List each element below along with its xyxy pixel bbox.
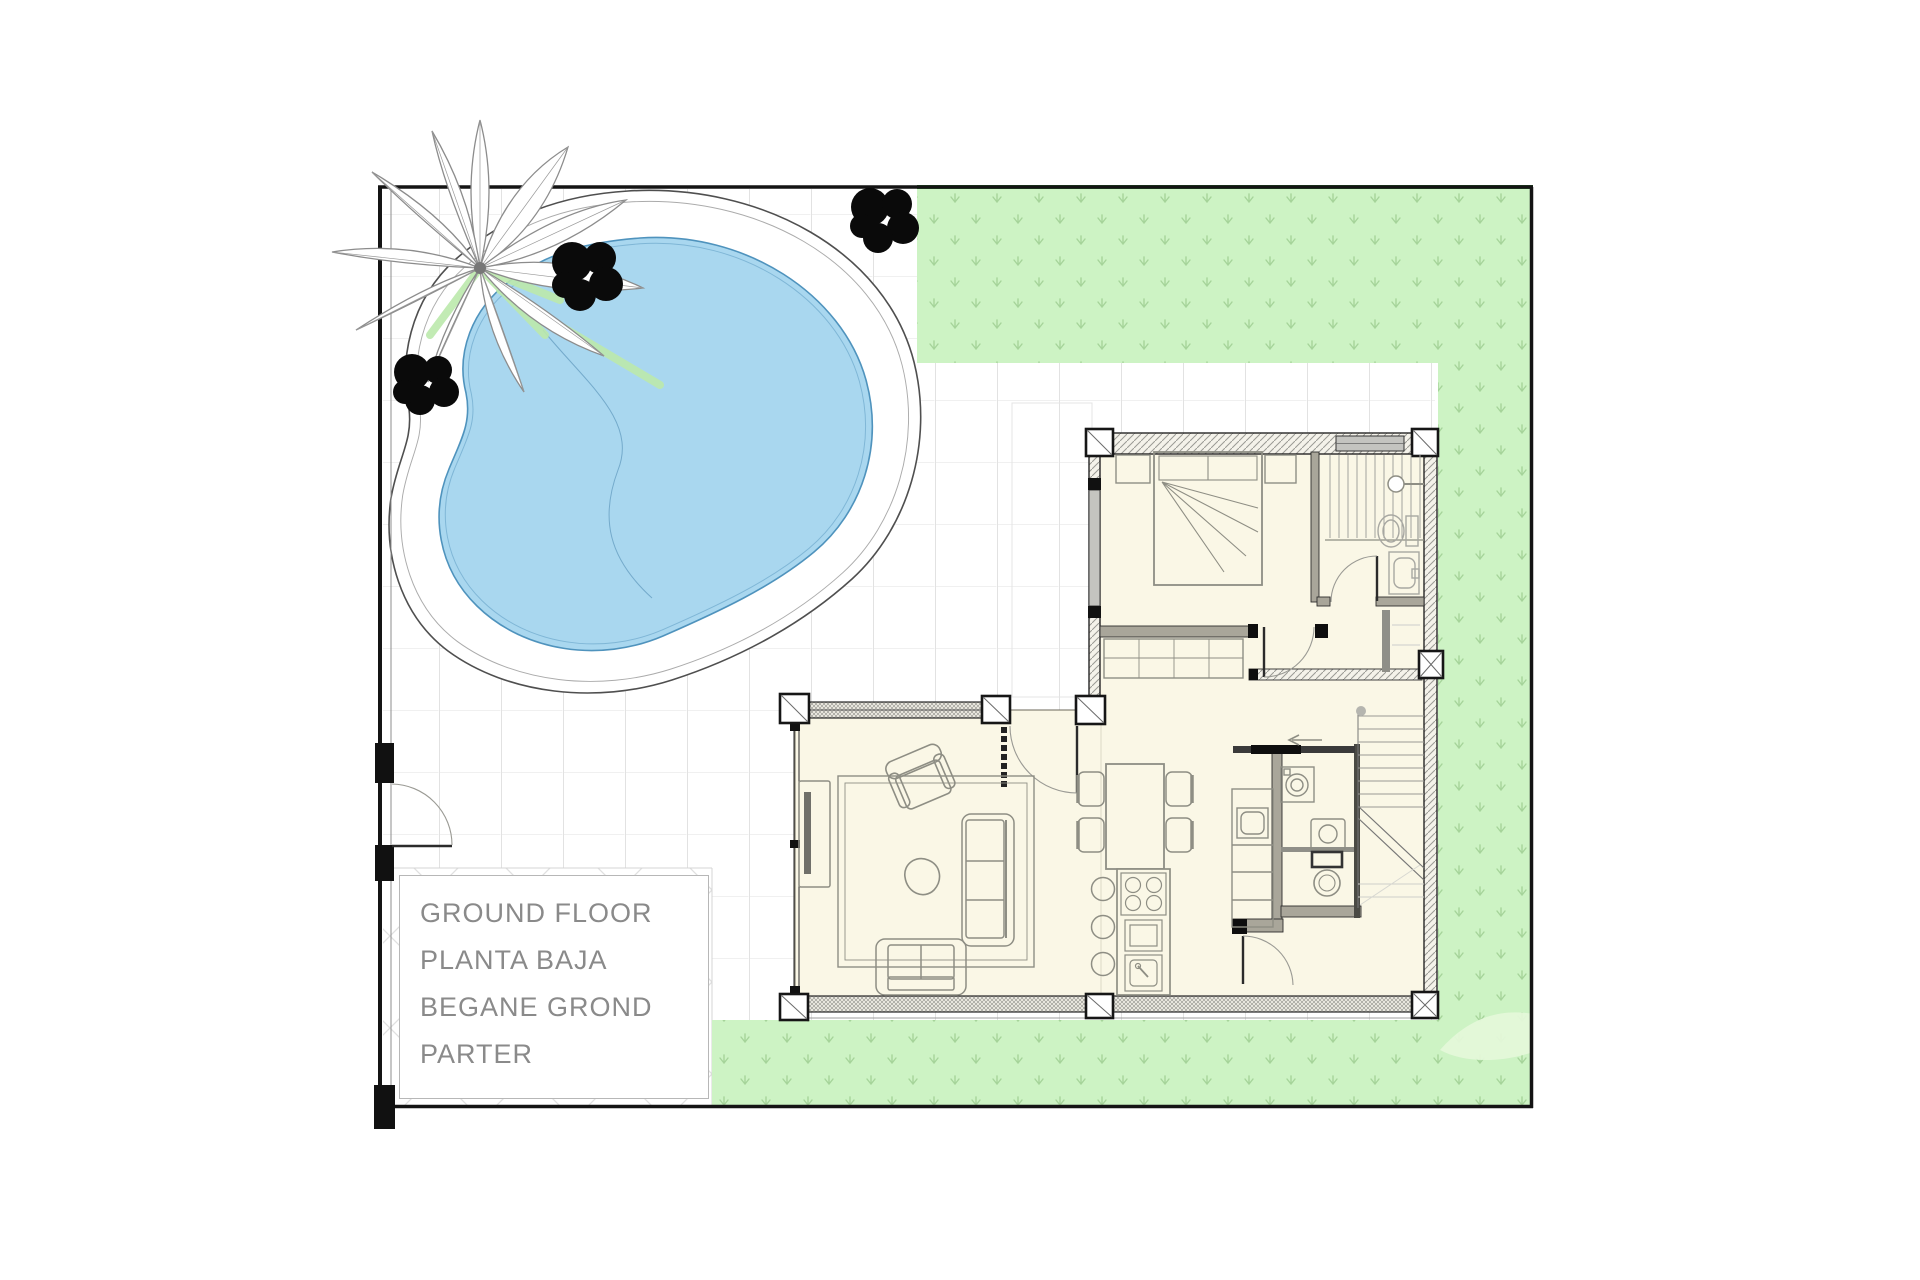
palm-trunk [474, 262, 486, 274]
wall-stair [1354, 744, 1360, 918]
wall-wc-bottom [1281, 906, 1361, 917]
wall-bedroom-hall [1100, 626, 1250, 637]
window-bedroom-west [1089, 490, 1100, 606]
lawn-right [1438, 362, 1533, 1108]
wall-hall-south [1249, 669, 1422, 680]
title-line-floor-es: PLANTA BAJA [420, 937, 708, 984]
window-cap [1088, 478, 1101, 490]
wall-bathroom-south-b [1376, 597, 1424, 606]
title-line-floor-en: GROUND FLOOR [420, 890, 708, 937]
shower-head [1388, 476, 1404, 492]
entry-screen-dots [1001, 727, 1007, 787]
dining-table [1106, 764, 1164, 869]
title-line-floor-nl: BEGANE GROND [420, 984, 708, 1031]
tv [804, 792, 811, 874]
lawn-bottom [712, 1020, 1533, 1108]
floor-plan-canvas: GROUND FLOOR PLANTA BAJA BEGANE GROND PA… [0, 0, 1920, 1280]
floor-plan-drawing [0, 0, 1920, 1280]
wall-bedroom-bathroom [1311, 452, 1319, 602]
title-block: GROUND FLOOR PLANTA BAJA BEGANE GROND PA… [399, 875, 709, 1099]
wall-bathroom-south-a [1317, 597, 1330, 606]
window-cap [1088, 606, 1101, 618]
wall-shaft [1382, 610, 1390, 672]
title-line-floor-pl: PARTER [420, 1031, 708, 1078]
wall-right [1424, 454, 1437, 995]
lawn-top [917, 187, 1533, 363]
stair-newel [1356, 706, 1366, 716]
